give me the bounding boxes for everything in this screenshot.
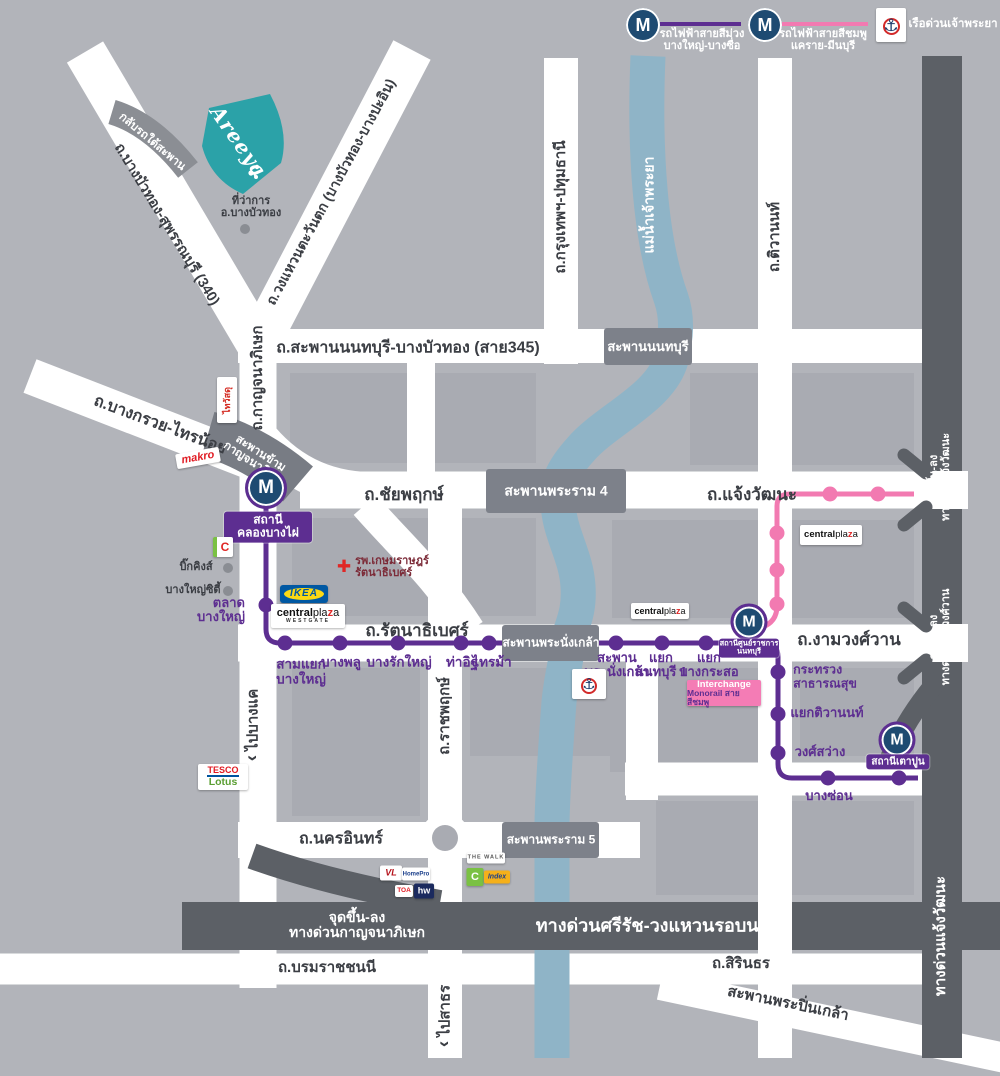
station-label-bangrakyai: บางรักใหญ่ [366,656,431,671]
anchor-icon: ⚓ [582,677,595,692]
station-label-bangson: บางซ่อน [805,789,852,803]
district-office-label: ที่ว่าการ อ.บางบัวทอง [221,196,282,220]
rama5-bridge-text: สะพานพระราม 5 [507,833,596,847]
thewalk-logo: THE WALK [467,853,505,864]
sirinthorn-text: ถ.สิรินธร [712,955,770,972]
road-label-chaengwattana: ถ.แจ้งวัฒนะ [707,486,797,504]
bigkings-text: บิ๊กคิงส์ [179,561,212,573]
chaiyaphruek-text: ถ.ชัยพฤกษ์ [364,485,444,504]
expressway-label-sirat: ทางด่วนศรีรัช-วงแหวนรอบนอก [536,916,781,935]
station-box-tao-poon: สถานีเตาปูน [866,754,929,769]
rama4-bridge-text: สะพานพระราม 4 [504,482,607,498]
tiwanon-text: ถ.ติวานนท์ [766,202,783,272]
a-text: a [333,608,339,619]
nonthaburi-bridge-text: สะพานนนทบุรี [607,339,688,354]
legend-purple-label: รถไฟฟ้าสายสีม่วง บางใหญ่-บางซื่อ [660,29,745,53]
station-line1: ตลาด [197,596,245,610]
cross-glyph: ✚ [337,557,351,576]
station-line2: คลองบางไผ่ [224,527,312,540]
mrt-station-icon-tao-poon: M [879,722,916,759]
expressway-entry-ngamwongwan: จุดขึ้น-ลง ทางด่วนงามวงศ์วาน [929,589,953,686]
westgate-text: WESTGATE [286,619,330,624]
bridge-label-phranangklao: สะพานพระนั่งเกล้า [503,637,600,650]
m-letter: M [258,477,274,499]
entry-text: จุดขึ้น-ลง [289,910,425,925]
station-line2: บางใหญ่ [276,672,326,687]
ratchaphruek-text: ถ.ราชพฤกษ์ [436,677,453,755]
bangyaicity-text: บางใหญ่ซิตี้ [165,584,220,596]
station-line1: สามแยก [276,657,326,672]
station-label-talad-bangyai: ตลาด บางใหญ่ [197,596,245,624]
krungthep-text: ถ.กรุงเทพฯ-ปทุมธานี [552,140,569,273]
m-letter: M [890,731,903,749]
homepro-text: HomePro [403,871,430,877]
to-sathorn-text: ไปสาธร [437,985,454,1037]
station-label-wongsawang: วงศ์สว่าง [795,745,846,759]
wongsawang-text: วงศ์สว่าง [795,744,846,759]
road-label-ngamwongwan: ถ.งามวงศ์วาน [797,631,900,649]
bangson-text: บางซ่อน [805,788,852,803]
to-bangkhae-text: ไปบางแค [245,689,262,751]
station-line2: สาธารณสุข [793,677,857,691]
pla-text: pla [835,530,848,540]
thaiwatsadu-logo: ไทวัสดุ [217,377,237,423]
station-label-saima: ไทรม้า [472,656,511,671]
road-label-krungthep-pathum: ถ.กรุงเทพฯ-ปทุมธานี [553,140,569,273]
legend-mrt-purple-icon: M [626,8,660,42]
toa-logo: TOA [395,885,413,897]
chaengwattana-text: ถ.แจ้งวัฒนะ [707,485,797,504]
anchor-icon: ⚓ [883,17,898,34]
expressway-label-chaengwattana: ทางด่วนแจ้งวัฒนะ [933,876,949,996]
station-line1: กระทรวง [793,664,857,678]
saima-text: ไทรม้า [472,655,511,670]
rattanathibet-text: ถ.รัตนาธิเบศร์ [365,621,468,640]
bridge-label-rama5: สะพานพระราม 5 [507,834,596,847]
road-label-nakhonin: ถ.นครอินทร์ [299,830,383,847]
road-label-rattanathibet: ถ.รัตนาธิเบศร์ [365,622,468,640]
transit-location-map: M รถไฟฟ้าสายสีม่วง บางใหญ่-บางซื่อ M รถไ… [0,0,1000,1076]
mrt-station-icon-civic-center: M [731,604,768,641]
lotus-text: Lotus [209,777,238,788]
bigc2-logo: C [467,868,484,886]
centralplaza-westgate-logo: centralplaza WESTGATE [271,604,345,628]
homepro-logo: HomePro [402,868,430,881]
road-label-borom: ถ.บรมราชชนนี [278,960,376,976]
sirat-text: ทางด่วนศรีรัช-วงแหวนรอบนอก [536,915,781,935]
thaiwatsadu-text: ไทวัสดุ [223,387,232,414]
road-label-tiwanon: ถ.ติวานนท์ [767,202,783,272]
index-text: Index [488,874,506,881]
central-text: central [634,607,664,616]
chevron-icon: ‹ [434,1041,455,1047]
station-label-bangkraso: แยก บางกระสอ [679,651,738,679]
station-label-bangphlu: บางพลู [321,656,361,671]
expressway-entry-chaengwattana: จุดขึ้น-ลง ทางด่วนแจ้งวัฒนะ [929,433,953,521]
bridge-label-rama4: สะพานพระราม 4 [504,483,607,498]
borom-text: ถ.บรมราชชนนี [278,959,376,976]
station-label-samyaek-bangyai: สามแยก บางใหญ่ [276,657,326,686]
centralplaza-chaengwattana-logo: centralplaza [800,525,862,545]
bigc-text: C [221,541,230,553]
direction-to-sathorn: ‹ ไปสาธร [435,985,456,1047]
m-letter: M [758,15,773,36]
direction-to-bangkhae: ‹ ไปบางแค [243,689,264,762]
station-line2: บางใหญ่ [197,610,245,624]
tesco-lotus-logo: TESCO Lotus [198,764,248,790]
bigc-text: C [471,872,479,883]
bangphlu-text: บางพลู [321,655,361,670]
a-text: a [681,607,686,616]
station-line1: แยก [679,651,738,665]
m-letter: M [742,613,755,631]
expressway-entry-kanchana: จุดขึ้น-ลง ทางด่วนกาญจนาภิเษก [289,910,425,940]
central-text: central [804,530,835,540]
station-line2: บางกระสอ [679,665,738,679]
centralplaza-rattanathibet-logo: centralplaza [631,603,689,619]
vl-text: VL [385,869,397,878]
station-box-khlong-bang-phai: สถานี คลองบางไผ่ [224,512,312,543]
homeworks-logo: hw [414,884,434,899]
nakhonin-text: ถ.นครอินทร์ [299,830,383,847]
district-line2: อ.บางบัวทอง [221,208,282,220]
sai345-text: ถ.สะพานนนทบุรี-บางบัวทอง (สาย345) [276,339,539,356]
interchange-line2: Monorail สายสีชมพู [687,689,761,706]
phranangklao-bridge-text: สะพานพระนั่งเกล้า [503,636,600,650]
mrt-station-icon-khlong-bang-phai: M [245,467,287,509]
vl-logo: VL [380,866,402,881]
legend-mrt-pink-icon: M [748,8,782,42]
boat-logo: ⚓ [876,8,906,42]
legend-pink-label: รถไฟฟ้าสายสีชมพู แคราย-มีนบุรี [779,29,867,53]
kanchana-expwy-text: ทางด่วนกาญจนาภิเษก [289,925,425,940]
m-letter: M [636,15,651,36]
legend-purple-line2: บางใหญ่-บางซื่อ [660,41,745,53]
toa-text: TOA [397,888,411,895]
legend-boat-text: เรือด่วนเจ้าพระยา [908,18,997,30]
a-text: a [853,530,858,540]
interchange-box: Interchange Monorail สายสีชมพู [687,680,761,706]
taopoon-text: สถานีเตาปูน [871,756,924,767]
pla-text: pla [664,607,676,616]
road-label-sai345: ถ.สะพานนนทบุรี-บางบัวทอง (สาย345) [276,339,539,356]
road-label-kanchanaphisek: ถ.กาญจนาภิเษก [250,326,266,431]
ikea-text: IKEA [290,589,318,599]
hw-text: hw [418,887,431,896]
bridge-label-nonthaburi: สะพานนนทบุรี [607,340,688,354]
station-label-moph: กระทรวง สาธารณสุข [793,664,857,691]
roundabout [420,813,470,863]
poi-bangyaicity: บางใหญ่ซิตี้ [165,585,220,597]
legend-boat-label: เรือด่วนเจ้าพระยา [908,18,997,30]
hospital-line2: รัตนาธิเบศร์ [355,568,429,580]
chevron-icon: ‹ [242,755,263,761]
ngamwongwan-text: ถ.งามวงศ์วาน [797,630,900,649]
chaeng-expwy-text: ทางด่วนแจ้งวัฒนะ [941,433,953,521]
red-cross-icon: ✚ [337,558,351,576]
road-label-sirinthorn: ถ.สิรินธร [712,956,770,972]
bigc-logo: C [213,537,233,557]
legend-pink-line2: แคราย-มีนบุรี [779,41,867,53]
index-logo: Index [484,871,510,884]
bangrakyai-text: บางรักใหญ่ [366,655,431,670]
river-text: แม่น้ำเจ้าพระยา [640,157,656,254]
river-label: แม่น้ำเจ้าพระยา [641,157,656,254]
poi-bigkings: บิ๊กคิงส์ [179,562,212,574]
road-label-ratchaphruek: ถ.ราชพฤกษ์ [437,677,453,755]
ikea-logo: IKEA [280,585,328,603]
chaeng-expwy-big-text: ทางด่วนแจ้งวัฒนะ [932,876,949,996]
hospital-label: รพ.เกษมราษฎร์ รัตนาธิเบศร์ [355,556,429,580]
road-label-chaiyaphruek: ถ.ชัยพฤกษ์ [364,486,444,504]
station-label-yaek-tiwanon: แยกติวานนท์ [790,706,863,720]
boat-logo-map: ⚓ [572,669,606,699]
thewalk-text: THE WALK [468,855,505,861]
kanchanaphisek-text: ถ.กาญจนาภิเษก [249,326,266,431]
yaek-tiwanon-text: แยกติวานนท์ [790,705,863,720]
ngam-expwy-text: ทางด่วนงามวงศ์วาน [941,589,953,686]
